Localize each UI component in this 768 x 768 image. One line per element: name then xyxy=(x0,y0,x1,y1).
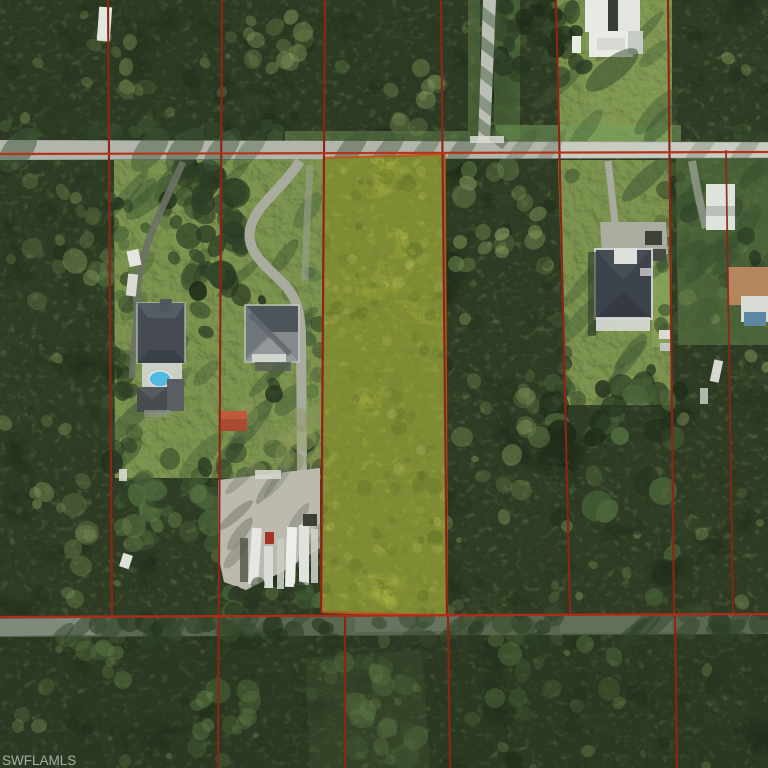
svg-text:SWFLAMLS: SWFLAMLS xyxy=(2,753,76,768)
